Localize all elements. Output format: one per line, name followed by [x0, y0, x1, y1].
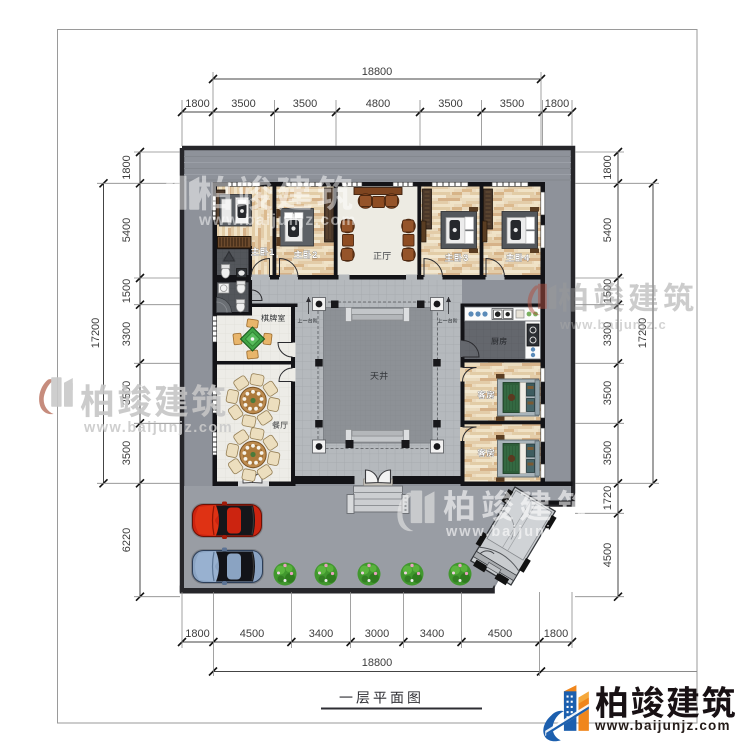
svg-text:3300: 3300 — [121, 322, 133, 346]
svg-text:5400: 5400 — [121, 218, 133, 242]
svg-text:1800: 1800 — [185, 628, 209, 640]
svg-text:4: 4 — [524, 253, 529, 263]
svg-text:3: 3 — [463, 253, 468, 263]
svg-text:1: 1 — [269, 247, 274, 257]
svg-text:3000: 3000 — [365, 628, 389, 640]
svg-text:www.baijunjz.com: www.baijunjz.com — [445, 524, 603, 540]
svg-text:5400: 5400 — [602, 218, 614, 242]
svg-text:3500: 3500 — [500, 98, 524, 110]
svg-text:1500: 1500 — [121, 279, 133, 303]
svg-text:3500: 3500 — [231, 98, 255, 110]
svg-text:www.baijunjz.c: www.baijunjz.c — [559, 317, 667, 332]
svg-text:6220: 6220 — [121, 528, 133, 552]
svg-text:www.baijunjz.com: www.baijunjz.com — [198, 212, 357, 229]
svg-text:3400: 3400 — [309, 628, 333, 640]
svg-text:4500: 4500 — [602, 543, 614, 567]
svg-text:3500: 3500 — [293, 98, 317, 110]
svg-text:18800: 18800 — [362, 66, 393, 78]
svg-text:3500: 3500 — [602, 441, 614, 465]
svg-text:17200: 17200 — [90, 318, 102, 349]
svg-text:www.baijunjz.com: www.baijunjz.com — [594, 718, 731, 733]
svg-text:1800: 1800 — [544, 628, 568, 640]
svg-text:www.baijunjz.com: www.baijunjz.com — [83, 420, 233, 436]
svg-text:4500: 4500 — [488, 628, 512, 640]
svg-text:4800: 4800 — [366, 98, 390, 110]
svg-text:1720: 1720 — [602, 486, 614, 510]
svg-text:1800: 1800 — [121, 155, 133, 179]
svg-text:4500: 4500 — [240, 628, 264, 640]
svg-text:2: 2 — [312, 250, 317, 260]
svg-text:1800: 1800 — [602, 155, 614, 179]
svg-text:3400: 3400 — [420, 628, 444, 640]
svg-text:18800: 18800 — [362, 657, 393, 669]
svg-text:1800: 1800 — [185, 98, 209, 110]
svg-text:3500: 3500 — [602, 381, 614, 405]
svg-text:3500: 3500 — [438, 98, 462, 110]
svg-text:3500: 3500 — [121, 441, 133, 465]
svg-text:1800: 1800 — [545, 98, 569, 110]
